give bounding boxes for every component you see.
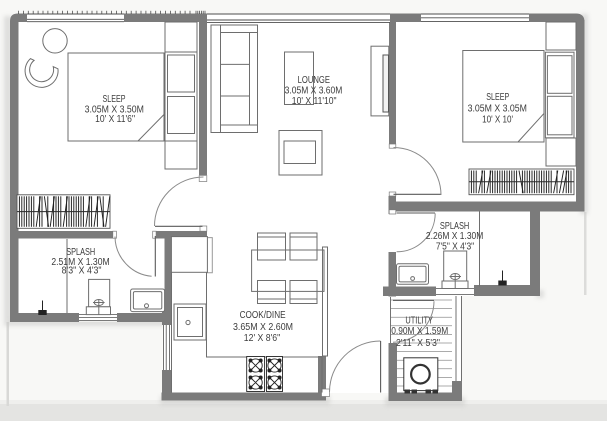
svg-text:12' X 8'6": 12' X 8'6"	[244, 333, 281, 344]
svg-text:0.90M X 1.59M: 0.90M X 1.59M	[391, 326, 448, 337]
svg-text:UTILITY: UTILITY	[405, 316, 433, 327]
svg-text:SLEEP: SLEEP	[103, 94, 126, 105]
svg-text:2.26M X 1.30M: 2.26M X 1.30M	[426, 231, 483, 242]
svg-text:10' X 10': 10' X 10'	[482, 115, 513, 126]
svg-text:7'5" X 4'3": 7'5" X 4'3"	[436, 242, 475, 253]
svg-text:LOUNGE: LOUNGE	[298, 75, 331, 86]
svg-text:3.65M X 2.60M: 3.65M X 2.60M	[233, 322, 293, 333]
svg-text:SLEEP: SLEEP	[486, 92, 509, 103]
svg-text:10' X 11'6'': 10' X 11'6''	[95, 114, 135, 125]
svg-text:COOK/DINE: COOK/DINE	[240, 310, 286, 321]
svg-text:3.05M X 3.05M: 3.05M X 3.05M	[468, 104, 527, 115]
svg-text:10' X 11'10": 10' X 11'10"	[292, 96, 337, 107]
svg-text:8'3" X 4'3": 8'3" X 4'3"	[62, 265, 102, 276]
svg-text:2'11" X 5'3": 2'11" X 5'3"	[396, 338, 440, 349]
